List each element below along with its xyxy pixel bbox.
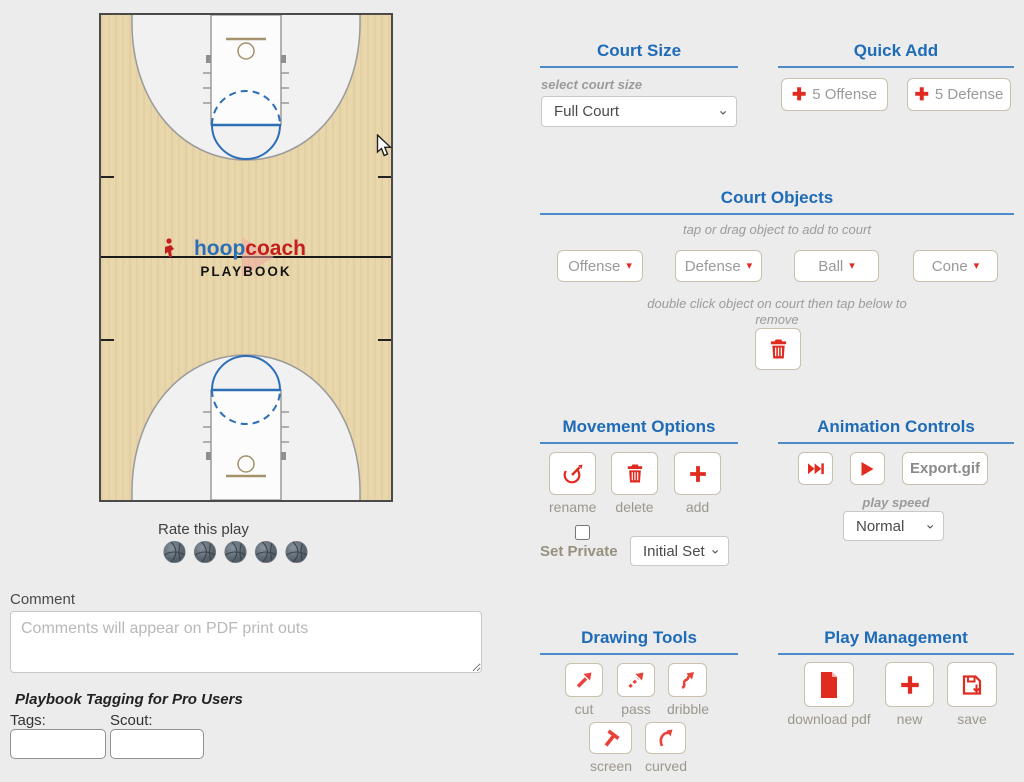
logo-wordmark: hoopcoach: [194, 237, 306, 260]
play-rating: [163, 540, 310, 564]
delete-movement-button[interactable]: [611, 452, 658, 495]
court-bottom-half: [132, 355, 360, 500]
export-gif-button[interactable]: Export.gif: [902, 452, 988, 485]
cone-object-dropdown[interactable]: Cone▾: [913, 250, 998, 282]
cut-label: cut: [556, 701, 612, 717]
play-management-title: Play Management: [778, 629, 1014, 655]
set-private-label: Set Private: [540, 543, 618, 560]
remove-object-hint: double click object on court then tap be…: [647, 296, 907, 329]
plus-icon: ✚: [915, 86, 929, 103]
pass-arrow-icon: [626, 670, 646, 690]
dribble-arrow-icon: [678, 670, 698, 690]
court-size-title: Court Size: [540, 42, 738, 68]
scout-input[interactable]: [110, 729, 204, 759]
download-pdf-button[interactable]: [804, 662, 854, 707]
movement-options-title: Movement Options: [540, 418, 738, 444]
caret-down-icon: ▾: [974, 261, 980, 272]
plus-icon: [900, 675, 920, 695]
animation-controls-title: Animation Controls: [778, 418, 1014, 444]
set-private-checkbox[interactable]: [575, 525, 590, 540]
offense-object-dropdown[interactable]: Offense▾: [557, 250, 643, 282]
court-size-helper: select court size: [541, 77, 642, 92]
rating-ball-5-icon[interactable]: [286, 541, 307, 562]
curved-arrow-icon: [656, 728, 676, 748]
playbook-editor-page: hoopcoach PLAYBOOK: [0, 0, 1024, 782]
play-speed-label: play speed: [778, 495, 1014, 510]
dribble-tool-button[interactable]: [668, 663, 707, 697]
delete-label: delete: [611, 499, 658, 515]
drawing-tools-title: Drawing Tools: [540, 629, 738, 655]
caret-down-icon: ▾: [849, 261, 855, 272]
add-label: add: [674, 499, 721, 515]
new-play-button[interactable]: [885, 662, 934, 707]
skip-to-end-button[interactable]: [798, 452, 833, 485]
cut-arrow-icon: [574, 670, 594, 690]
curved-label: curved: [638, 758, 694, 774]
ball-object-dropdown[interactable]: Ball▾: [794, 250, 879, 282]
rating-ball-3-icon[interactable]: [225, 541, 246, 562]
play-speed-select[interactable]: Normal: [843, 511, 944, 541]
comment-input[interactable]: [10, 611, 482, 673]
play-animation-button[interactable]: [850, 452, 885, 485]
court-objects-helper: tap or drag object to add to court: [540, 222, 1014, 237]
edit-icon: [563, 464, 583, 484]
court-size-select-wrap: Full Court ⌄: [541, 96, 737, 127]
court-objects-title: Court Objects: [540, 189, 1014, 215]
dribble-label: dribble: [660, 701, 716, 717]
play-icon: [861, 462, 874, 476]
remove-object-button[interactable]: [755, 328, 801, 370]
trash-icon: [769, 338, 788, 360]
rating-ball-1-icon[interactable]: [164, 541, 185, 562]
pro-tagging-title: Playbook Tagging for Pro Users: [15, 691, 243, 708]
save-play-button[interactable]: [947, 662, 997, 707]
court-diagram: hoopcoach PLAYBOOK: [101, 15, 391, 500]
screen-tool-button[interactable]: [589, 722, 632, 754]
add-5-offense-button[interactable]: ✚ 5 Offense: [781, 78, 888, 111]
pdf-file-icon: [819, 672, 839, 698]
cut-tool-button[interactable]: [565, 663, 603, 697]
screen-label: screen: [583, 758, 639, 774]
save-label: save: [947, 711, 997, 727]
scout-label: Scout:: [110, 712, 153, 729]
skip-forward-icon: [808, 463, 824, 475]
tags-label: Tags:: [10, 712, 46, 729]
court-canvas[interactable]: hoopcoach PLAYBOOK: [99, 13, 393, 502]
rate-play-label: Rate this play: [158, 521, 249, 538]
pass-label: pass: [608, 701, 664, 717]
rename-label: rename: [549, 499, 596, 515]
download-pdf-label: download pdf: [779, 711, 879, 727]
rename-movement-button[interactable]: [549, 452, 596, 495]
logo-player-icon: [165, 238, 174, 257]
caret-down-icon: ▾: [626, 261, 632, 272]
mouse-cursor-icon: [376, 134, 394, 158]
movement-set-select-wrap: Initial Set ⌄: [630, 536, 729, 566]
tags-input[interactable]: [10, 729, 106, 759]
movement-set-select[interactable]: Initial Set: [630, 536, 729, 566]
save-icon: [961, 674, 983, 696]
pass-tool-button[interactable]: [617, 663, 655, 697]
add-5-defense-button[interactable]: ✚ 5 Defense: [907, 78, 1011, 111]
comment-label: Comment: [10, 591, 75, 608]
defense-object-dropdown[interactable]: Defense▾: [675, 250, 762, 282]
new-label: new: [885, 711, 934, 727]
court-size-select[interactable]: Full Court: [541, 96, 737, 127]
plus-icon: [689, 465, 707, 483]
quick-add-title: Quick Add: [778, 42, 1014, 68]
caret-down-icon: ▾: [747, 261, 753, 272]
rating-ball-2-icon[interactable]: [194, 541, 215, 562]
play-speed-select-wrap: Normal ⌄: [843, 511, 944, 541]
trash-icon: [626, 463, 644, 484]
plus-icon: ✚: [792, 86, 806, 103]
screen-arrow-icon: [601, 728, 621, 748]
add-movement-button[interactable]: [674, 452, 721, 495]
logo-playbook-text: PLAYBOOK: [200, 264, 291, 279]
curved-tool-button[interactable]: [645, 722, 686, 754]
court-top-half: [132, 15, 360, 160]
rating-ball-4-icon[interactable]: [255, 541, 276, 562]
